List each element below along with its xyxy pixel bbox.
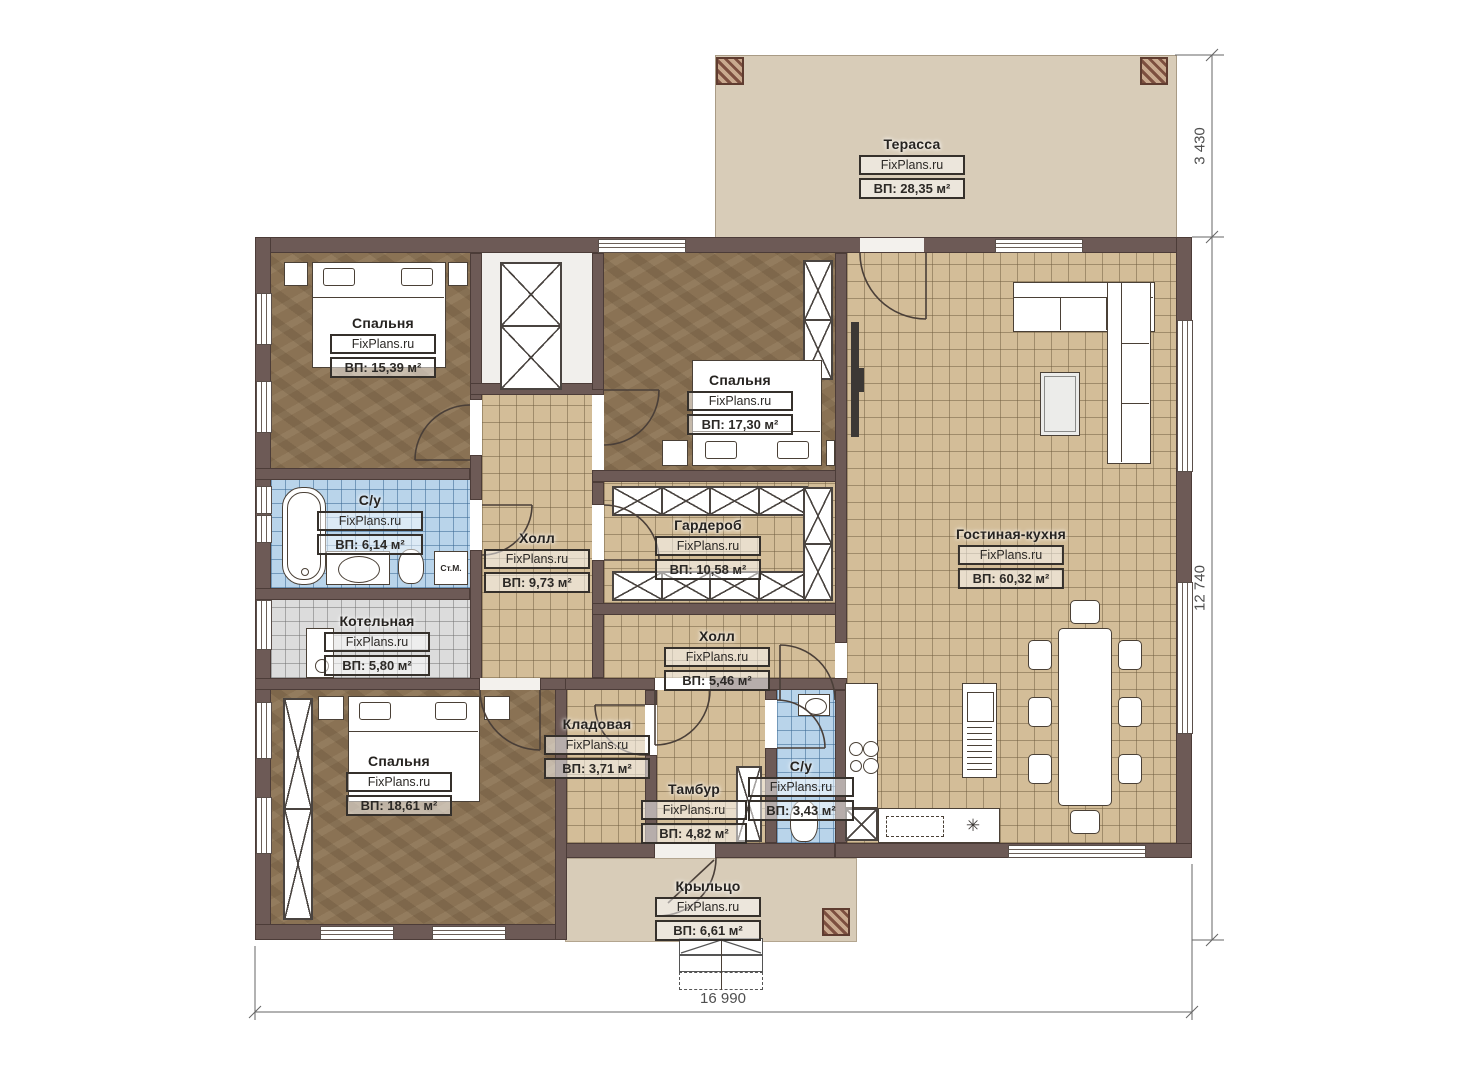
- wall-segment: [255, 468, 470, 480]
- room-name: Холл: [664, 628, 770, 644]
- room-label-bathroom-1: С/у FixPlans.ru ВП: 6,14 м²: [317, 492, 423, 555]
- room-label-terrace: Терасса FixPlans.ru ВП: 28,35 м²: [859, 136, 965, 199]
- room-label-living-kitchen: Гостиная-кухня FixPlans.ru ВП: 60,32 м²: [956, 526, 1066, 589]
- wall-segment: [645, 690, 657, 705]
- room-label-wardrobe: Гардероб FixPlans.ru ВП: 10,58 м²: [655, 517, 761, 580]
- room-area: ВП: 3,43 м²: [748, 800, 854, 821]
- window: [256, 600, 272, 650]
- cabinet-cell: [284, 699, 312, 809]
- room-name: Крыльцо: [655, 878, 761, 894]
- chair: [1070, 810, 1100, 834]
- room-label-storage: Кладовая FixPlans.ru ВП: 3,71 м²: [544, 716, 650, 779]
- room-label-bathroom-2: С/у FixPlans.ru ВП: 3,43 м²: [748, 758, 854, 821]
- fridge-vents: [967, 726, 992, 770]
- dining-table: [1058, 628, 1112, 806]
- brand-watermark: FixPlans.ru: [687, 391, 793, 411]
- cabinet-cell: [759, 487, 808, 515]
- wall-segment: [592, 482, 604, 505]
- room-area: ВП: 4,82 м²: [641, 823, 747, 844]
- cabinet-cell: [501, 263, 561, 326]
- sink-basin: [805, 698, 827, 715]
- stove-burner: [863, 741, 879, 757]
- nightstand: [284, 262, 308, 286]
- closet-cabinet: [500, 262, 562, 390]
- brand-watermark: FixPlans.ru: [544, 735, 650, 755]
- cabinet-cell: [759, 572, 808, 600]
- window: [1177, 320, 1193, 472]
- porch-column: [822, 908, 850, 936]
- floor-plan-canvas: ✳ Ст.М.: [0, 0, 1473, 1080]
- wall-segment: [470, 253, 482, 400]
- room-area: ВП: 3,71 м²: [544, 758, 650, 779]
- window: [256, 381, 272, 433]
- pillow: [435, 702, 467, 720]
- room-label-hall-1: Холл FixPlans.ru ВП: 9,73 м²: [484, 530, 590, 593]
- room-area: ВП: 17,30 м²: [687, 414, 793, 435]
- nightstand: [448, 262, 468, 286]
- window: [320, 926, 394, 940]
- wall-segment: [592, 560, 604, 678]
- bathtub-inner: [287, 492, 321, 580]
- wall-segment: [255, 924, 567, 940]
- room-name: Терасса: [859, 136, 965, 152]
- pillow: [401, 268, 433, 286]
- wall-segment: [565, 843, 655, 858]
- sink-basin: [338, 556, 380, 583]
- room-area: ВП: 15,39 м²: [330, 357, 436, 378]
- pillow: [359, 702, 391, 720]
- chair: [1028, 640, 1052, 670]
- room-name: Спальня: [687, 372, 793, 388]
- cabinet-cell: [501, 326, 561, 389]
- coffee-table: [1040, 372, 1080, 436]
- brand-watermark: FixPlans.ru: [346, 772, 452, 792]
- room-area: ВП: 28,35 м²: [859, 178, 965, 199]
- nightstand: [662, 440, 688, 466]
- brand-watermark: FixPlans.ru: [958, 545, 1064, 565]
- room-area: ВП: 5,80 м²: [324, 655, 430, 676]
- room-name: Спальня: [346, 753, 452, 769]
- chair: [1028, 697, 1052, 727]
- room-area: ВП: 6,14 м²: [317, 534, 423, 555]
- wall-segment: [255, 678, 480, 690]
- cabinet-cell: [804, 488, 832, 544]
- wall-segment: [592, 603, 847, 615]
- blanket-line: [349, 731, 478, 732]
- step-divider: [721, 938, 722, 990]
- nightstand: [318, 696, 344, 720]
- chair: [1070, 600, 1100, 624]
- room-name: Спальня: [330, 315, 436, 331]
- window: [598, 239, 686, 253]
- wall-segment: [592, 253, 604, 390]
- window: [256, 797, 272, 854]
- chair: [1118, 640, 1142, 670]
- dimension-house-depth: 12 740: [1192, 565, 1209, 611]
- brand-watermark: FixPlans.ru: [655, 897, 761, 917]
- stove-burner: [849, 742, 863, 756]
- wall-segment: [540, 678, 567, 690]
- window: [256, 515, 272, 543]
- sofa-vertical: [1107, 282, 1151, 464]
- fridge-door: [967, 692, 994, 722]
- room-label-bedroom-3: Спальня FixPlans.ru ВП: 18,61 м²: [346, 753, 452, 816]
- bedroom-3-closet: [283, 698, 313, 920]
- room-name: Кладовая: [544, 716, 650, 732]
- room-area: ВП: 5,46 м²: [664, 670, 770, 691]
- dimension-house-width: 16 990: [700, 990, 746, 1007]
- room-label-vestibule: Тамбур FixPlans.ru ВП: 4,82 м²: [641, 781, 747, 844]
- washing-machine: Ст.М.: [434, 551, 468, 585]
- sofa-divider: [1060, 297, 1061, 330]
- room-label-bedroom-1: Спальня FixPlans.ru ВП: 15,39 м²: [330, 315, 436, 378]
- sofa-seat-line: [1121, 283, 1122, 462]
- window: [256, 486, 272, 514]
- brand-watermark: FixPlans.ru: [484, 549, 590, 569]
- room-name: Тамбур: [641, 781, 747, 797]
- window: [432, 926, 506, 940]
- wall-segment: [715, 843, 835, 858]
- chair: [1118, 697, 1142, 727]
- kitchen-sink-icon: ✳: [948, 810, 998, 841]
- brand-watermark: FixPlans.ru: [317, 511, 423, 531]
- wall-segment: [255, 588, 470, 600]
- wardrobe-cabinet-right: [803, 487, 833, 601]
- dimension-ticks: [1206, 49, 1218, 946]
- fridge: [962, 683, 997, 778]
- sofa-divider: [1121, 343, 1149, 344]
- chair: [1028, 754, 1052, 784]
- dimension-ticks: [249, 1006, 1198, 1018]
- cabinet-cell: [804, 544, 832, 600]
- pillow: [705, 441, 737, 459]
- cabinet-cell: [613, 487, 662, 515]
- dimension-terrace-depth: 3 430: [1192, 127, 1209, 165]
- cabinet-cell: [710, 487, 759, 515]
- terrace-column-right: [1140, 57, 1168, 85]
- room-name: С/у: [748, 758, 854, 774]
- brand-watermark: FixPlans.ru: [655, 536, 761, 556]
- terrace-door-opening: [860, 238, 924, 252]
- room-label-boiler-room: Котельная FixPlans.ru ВП: 5,80 м²: [324, 613, 430, 676]
- wall-segment: [470, 550, 482, 690]
- cabinet-cell: [284, 809, 312, 919]
- tv-panel: [851, 322, 859, 437]
- room-area: ВП: 60,32 м²: [958, 568, 1064, 589]
- stove-burner: [863, 758, 879, 774]
- room-name: С/у: [317, 492, 423, 508]
- window: [995, 239, 1083, 253]
- room-area: ВП: 10,58 м²: [655, 559, 761, 580]
- cabinet-cell: [804, 261, 832, 320]
- terrace-column-left: [716, 57, 744, 85]
- entrance-door-opening: [655, 843, 715, 858]
- room-name: Гостиная-кухня: [956, 526, 1066, 542]
- brand-watermark: FixPlans.ru: [859, 155, 965, 175]
- wall-segment: [835, 253, 847, 643]
- room-name: Котельная: [324, 613, 430, 629]
- brand-watermark: FixPlans.ru: [330, 334, 436, 354]
- pillow: [323, 268, 355, 286]
- cabinet-cell: [662, 487, 711, 515]
- brand-watermark: FixPlans.ru: [664, 647, 770, 667]
- room-area: ВП: 6,61 м²: [655, 920, 761, 941]
- sofa-divider: [1121, 403, 1149, 404]
- room-area: ВП: 9,73 м²: [484, 572, 590, 593]
- tv-bracket: [859, 368, 864, 392]
- room-label-porch: Крыльцо FixPlans.ru ВП: 6,61 м²: [655, 878, 761, 941]
- coffee-table-top: [1044, 376, 1076, 432]
- wall-segment: [765, 690, 777, 700]
- window: [256, 293, 272, 345]
- brand-watermark: FixPlans.ru: [641, 800, 747, 820]
- room-label-hall-2: Холл FixPlans.ru ВП: 5,46 м²: [664, 628, 770, 691]
- wardrobe-cabinet-top: [612, 486, 808, 516]
- room-area: ВП: 18,61 м²: [346, 795, 452, 816]
- brand-watermark: FixPlans.ru: [748, 777, 854, 797]
- kitchen-cabinet-dashed: [886, 816, 944, 837]
- pillow: [777, 441, 809, 459]
- chair: [1118, 754, 1142, 784]
- room-name: Гардероб: [655, 517, 761, 533]
- window: [256, 702, 272, 759]
- brand-watermark: FixPlans.ru: [324, 632, 430, 652]
- room-label-bedroom-2: Спальня FixPlans.ru ВП: 17,30 м²: [687, 372, 793, 435]
- room-name: Холл: [484, 530, 590, 546]
- wall-segment: [470, 455, 482, 500]
- nightstand: [484, 696, 510, 720]
- sink-counter: [326, 551, 390, 585]
- wall-segment: [565, 678, 655, 690]
- blanket-line: [313, 297, 444, 298]
- bathtub-drain: [301, 568, 309, 576]
- nightstand: [826, 440, 835, 466]
- sink-counter: [798, 694, 830, 716]
- bedroom-3-door-opening: [480, 678, 540, 690]
- window: [1008, 845, 1146, 858]
- wall-segment: [592, 470, 847, 482]
